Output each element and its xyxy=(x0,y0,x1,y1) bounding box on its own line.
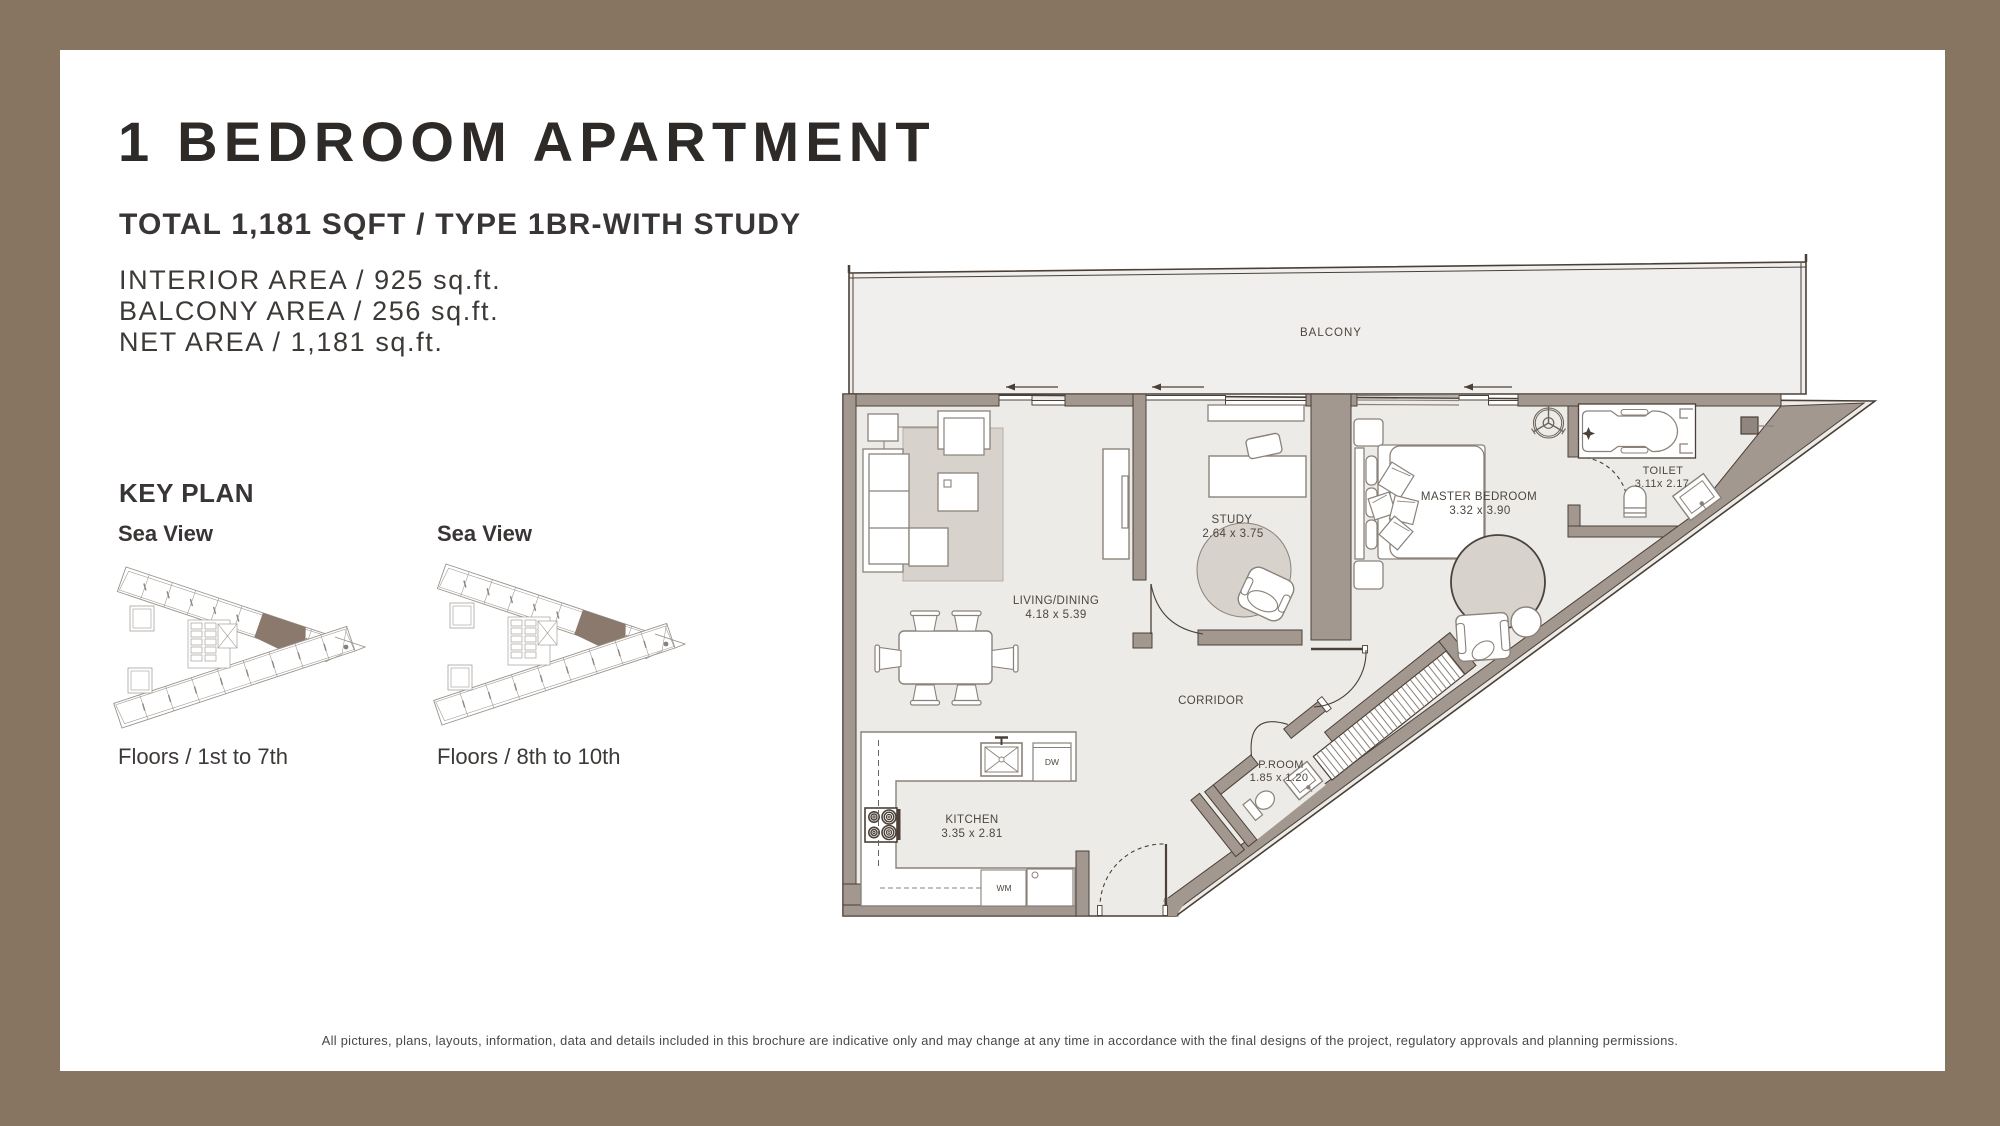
svg-text:DW: DW xyxy=(1045,757,1059,767)
svg-text:BALCONY: BALCONY xyxy=(1300,327,1362,339)
svg-text:4.18 x 5.39: 4.18 x 5.39 xyxy=(1025,609,1086,621)
svg-text:CORRIDOR: CORRIDOR xyxy=(1178,695,1244,707)
svg-text:KITCHEN: KITCHEN xyxy=(945,814,998,826)
svg-text:1.85 x 1.20: 1.85 x 1.20 xyxy=(1250,772,1309,784)
svg-text:STUDY: STUDY xyxy=(1212,514,1253,526)
svg-text:2.64 x 3.75: 2.64 x 3.75 xyxy=(1202,528,1263,540)
svg-text:TOILET: TOILET xyxy=(1643,465,1684,477)
svg-text:3.35 x 2.81: 3.35 x 2.81 xyxy=(941,828,1002,840)
svg-text:WM: WM xyxy=(996,883,1011,893)
svg-text:MASTER BEDROOM: MASTER BEDROOM xyxy=(1421,491,1537,503)
svg-text:P.ROOM: P.ROOM xyxy=(1258,759,1304,771)
svg-text:3.32 x 3.90: 3.32 x 3.90 xyxy=(1449,505,1510,517)
svg-text:LIVING/DINING: LIVING/DINING xyxy=(1013,595,1099,607)
svg-text:3.11x 2.17: 3.11x 2.17 xyxy=(1635,478,1690,490)
